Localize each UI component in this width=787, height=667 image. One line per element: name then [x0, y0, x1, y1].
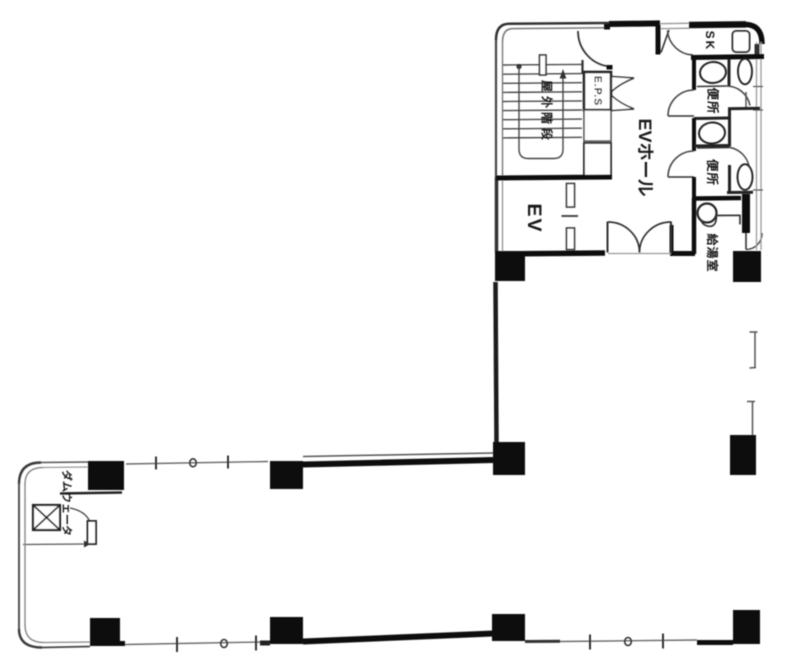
- svg-text:便所: 便所: [706, 87, 720, 114]
- svg-text:SK: SK: [703, 31, 717, 52]
- svg-text:EV: EV: [523, 203, 545, 233]
- svg-text:EVホール: EVホール: [635, 118, 655, 196]
- svg-text:屋外階段: 屋外階段: [540, 80, 554, 144]
- svg-text:E.P.S: E.P.S: [592, 76, 604, 107]
- svg-text:ダムウェータ: ダムウェータ: [60, 470, 73, 536]
- svg-text:便所: 便所: [705, 159, 719, 186]
- svg-text:給湯室: 給湯室: [705, 233, 719, 272]
